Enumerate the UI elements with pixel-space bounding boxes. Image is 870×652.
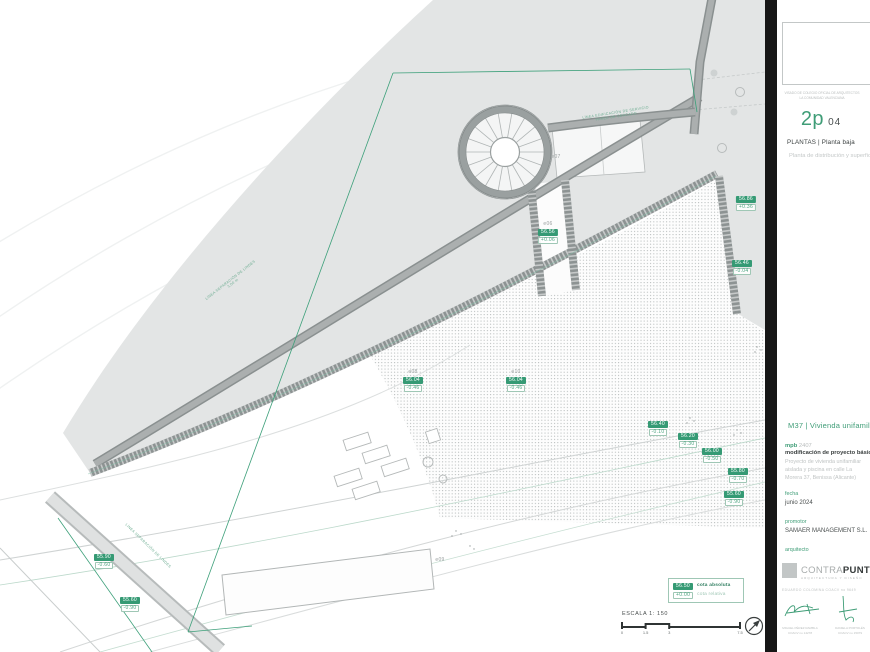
level-chip-group: e1056.04-0.46 xyxy=(506,370,526,392)
project-title: M37 | Vivienda unifamiliar xyxy=(788,421,870,430)
spiral-staircase xyxy=(458,105,552,199)
relative-elevation-chip: -0.90 xyxy=(121,605,140,612)
promotor-value: SAMAER MANAGEMENT S.L. xyxy=(785,528,867,534)
series-title: PLANTAS | Planta baja xyxy=(787,139,855,146)
bottom-left-wall-band xyxy=(0,497,220,652)
visado-note: VISADO DE COLEGIO OFICIAL DE ARQUITECTOS… xyxy=(777,91,867,100)
modification-title: modificación de proyecto básico xyxy=(785,450,870,456)
sheet-subtitle: Planta de distribución y superficies xyxy=(789,153,870,159)
relative-elevation-chip: -0.10 xyxy=(649,429,668,436)
scale-tick: 3 xyxy=(668,630,670,635)
fecha-value: junio 2024 xyxy=(785,500,813,506)
project-reference: mpb 2407 xyxy=(785,443,812,449)
north-arrow-icon xyxy=(741,612,767,638)
level-chip-group: e0856.04-0.46 xyxy=(403,370,423,392)
studio-logo-icon xyxy=(782,563,797,578)
level-chip-group: 56.20-0.30 xyxy=(678,433,698,448)
level-chip-group: e0656.56+0.06 xyxy=(538,222,558,244)
project-description: Morera 37, Benissa (Alicante) xyxy=(785,475,856,481)
level-chip-group: 55.90-0.60 xyxy=(94,554,114,569)
absolute-elevation-chip: 56.00 xyxy=(702,448,722,455)
relative-elevation-chip: -0.46 xyxy=(507,385,526,392)
project-description: aislada y piscina en calle La xyxy=(785,467,852,473)
absolute-elevation-chip: 55.80 xyxy=(728,468,748,475)
signature-2-name: DANIELA PORTOLÉS COACV no 15079 xyxy=(827,626,870,635)
signatures xyxy=(777,594,870,626)
absolute-elevation-chip: 55.60 xyxy=(120,597,140,604)
legend-absolute-chip: 56.50 xyxy=(673,583,693,590)
stamp-box xyxy=(782,22,870,85)
legend-absolute-label: cota absoluta xyxy=(697,584,731,589)
project-description: Proyecto de vivienda unifamiliar xyxy=(785,459,861,465)
room-code: e07 xyxy=(551,155,560,160)
absolute-elevation-chip: 56.46 xyxy=(732,260,752,267)
scale-label: ESCALA 1: 150 xyxy=(622,611,668,617)
relative-elevation-chip: -0.04 xyxy=(733,268,752,275)
absolute-elevation-chip: 55.60 xyxy=(724,491,744,498)
level-chip-group: e07 xyxy=(551,155,560,161)
absolute-elevation-chip: 56.04 xyxy=(506,377,526,384)
arquitecto-label: arquitecto xyxy=(785,547,809,553)
absolute-elevation-chip: 56.40 xyxy=(648,421,668,428)
level-chip-group: 56.40-0.10 xyxy=(648,421,668,436)
absolute-elevation-chip: 56.56 xyxy=(538,229,558,236)
signature-2 xyxy=(839,596,857,622)
room-code: e10 xyxy=(511,370,520,375)
signature-1-name: MIGUEL PÉREZ RAMBLA COACV no 14278 xyxy=(777,626,823,635)
scale-tick: 1.5 xyxy=(643,630,649,635)
level-chip-group: 56.00-0.50 xyxy=(702,448,722,463)
ref-label: mpb xyxy=(785,443,797,449)
legend-row-absolute: 56.50 cota absoluta xyxy=(673,583,739,590)
relative-elevation-chip: -0.46 xyxy=(404,385,423,392)
absolute-elevation-chip: 56.04 xyxy=(403,377,423,384)
sheet-number-row: 2p 04 xyxy=(777,108,865,131)
level-chip-group: 56.86+0.36 xyxy=(736,196,756,211)
floor-plan: e0656.56+0.06e0856.04-0.46e1056.04-0.465… xyxy=(0,0,765,652)
sheet-number: 04 xyxy=(828,117,841,128)
absolute-elevation-chip: 56.20 xyxy=(678,433,698,440)
absolute-elevation-chip: 56.86 xyxy=(736,196,756,203)
level-chip-group: 55.60-0.90 xyxy=(120,597,140,612)
legend-relative-chip: +0.00 xyxy=(673,592,693,599)
relative-elevation-chip: -0.70 xyxy=(729,476,748,483)
relative-elevation-chip: +0.36 xyxy=(736,204,756,211)
sheet-code: 2p xyxy=(801,108,824,131)
drawing-sheet: e0656.56+0.06e0856.04-0.46e1056.04-0.465… xyxy=(0,0,870,652)
room-code: e06 xyxy=(543,222,552,227)
relative-elevation-chip: -0.90 xyxy=(725,499,744,506)
pool xyxy=(222,549,434,615)
relative-elevation-chip: -0.50 xyxy=(703,456,722,463)
level-chip-group: 55.80-0.70 xyxy=(728,468,748,483)
level-chip-group: 56.46-0.04 xyxy=(732,260,752,275)
fecha-label: fecha xyxy=(785,491,798,497)
signature-1 xyxy=(785,604,819,616)
relative-elevation-chip: +0.06 xyxy=(538,237,558,244)
studio-logo-subtitle: ARQUITECTURA Y DISEÑO xyxy=(801,576,863,580)
level-chip-group: e09 xyxy=(435,558,444,564)
relative-elevation-chip: -0.60 xyxy=(95,562,114,569)
architect-registration-line: EDUARDO COLOMINA COACV no 9649 xyxy=(782,588,856,592)
plan-drawing-svg xyxy=(0,0,765,652)
absolute-elevation-chip: 55.90 xyxy=(94,554,114,561)
title-block: VISADO DE COLEGIO OFICIAL DE ARQUITECTOS… xyxy=(777,0,870,652)
ref-number: 2407 xyxy=(799,443,812,449)
relative-elevation-chip: -0.30 xyxy=(679,441,698,448)
scale-tick: 0 xyxy=(621,630,623,635)
promotor-label: promotor xyxy=(785,519,807,525)
scale-bar: 0 1.5 3 7.5 xyxy=(620,619,744,635)
legend-relative-label: cota relativa xyxy=(697,593,725,598)
legend-row-relative: +0.00 cota relativa xyxy=(673,592,739,599)
level-chip-group: 55.60-0.90 xyxy=(724,491,744,506)
sheet-edge-bar xyxy=(765,0,777,652)
room-code: e09 xyxy=(435,558,444,563)
elevation-legend: 56.50 cota absoluta +0.00 cota relativa xyxy=(668,578,744,603)
studio-logo-text: CONTRAPUNTO xyxy=(801,565,870,576)
room-code: e08 xyxy=(408,370,417,375)
